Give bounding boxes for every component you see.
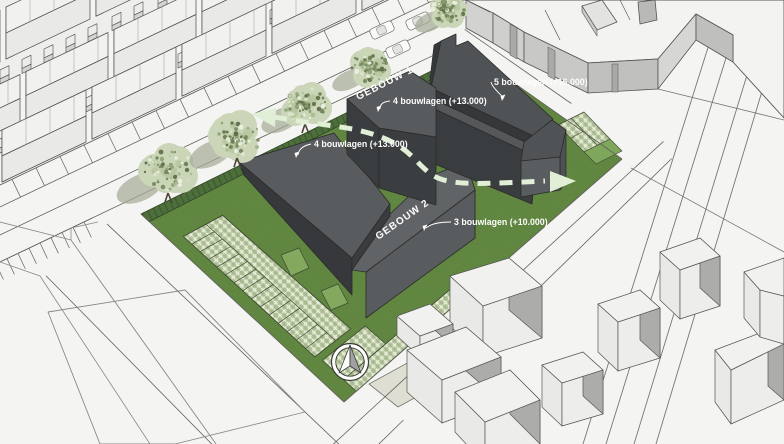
svg-text:3 bouwlagen (+10.000): 3 bouwlagen (+10.000) [454,217,548,227]
svg-text:4 bouwlagen (+13.000): 4 bouwlagen (+13.000) [393,96,487,106]
svg-text:4 bouwlagen (+13.000): 4 bouwlagen (+13.000) [314,139,408,149]
svg-text:5 bouwlagen (+16.000): 5 bouwlagen (+16.000) [494,77,588,87]
